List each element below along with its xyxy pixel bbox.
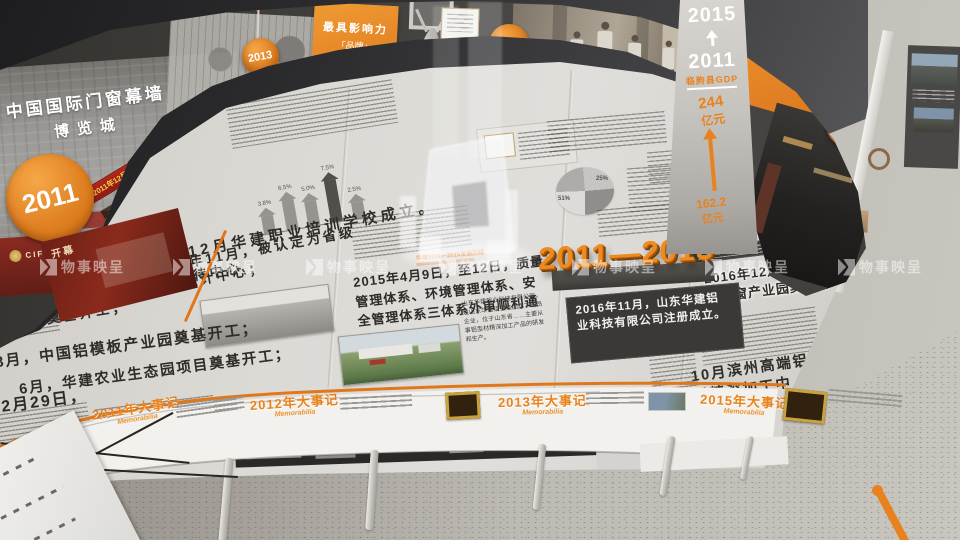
right-panel-text: 2011年12月 临朐华建股份有限公司成立 xyxy=(745,14,859,96)
text-lines xyxy=(226,79,399,149)
collage-photo xyxy=(315,427,356,458)
collage-photo xyxy=(448,424,483,453)
text-lines xyxy=(745,42,811,80)
text-lines xyxy=(547,111,668,155)
gold-plaque xyxy=(782,388,827,424)
exhibition-hall-render: 3.8% 6.5% 5.0% 7.5% 2.5% 12月华建职业培训学校成立。 … xyxy=(0,0,960,540)
railing-photo-chip xyxy=(648,392,686,411)
red-sign xyxy=(369,359,385,366)
orange-dot xyxy=(259,68,267,76)
building-shape xyxy=(358,344,413,360)
ring-object xyxy=(868,148,890,170)
opening-poster-text: 开幕 xyxy=(49,240,76,260)
up-arrow-icon xyxy=(666,28,759,49)
memorabilia-2013: 2013年大事记 Memorabilia xyxy=(498,390,588,417)
text-lines xyxy=(912,89,954,102)
collage-photo xyxy=(245,431,302,459)
gold-plaque xyxy=(445,391,480,420)
collage-photo xyxy=(554,420,585,449)
flag-icon xyxy=(846,58,860,68)
gdp-pillar: 2015 2011 临朐县GDP 244 亿元 162.2 亿元 xyxy=(666,0,758,254)
company-paragraph: 山东华建铝业科技有限公司，是山东华建铝业集团旗下成员企业，位于山东省……主要从事… xyxy=(461,292,550,387)
lit-window xyxy=(813,168,853,184)
poster-photo xyxy=(95,232,173,288)
background-photo xyxy=(911,53,958,85)
flag-icon xyxy=(245,2,258,12)
right-panel-date: 2011年12月 xyxy=(758,14,859,70)
gdp-2011-value-group: 162.2 亿元 xyxy=(665,191,760,230)
background-display-board xyxy=(904,45,960,169)
collage-photo xyxy=(369,429,436,453)
year-marker-2013-label: 2013 xyxy=(247,48,273,64)
right-end-top-panel xyxy=(737,0,878,52)
year-marker-2011-label: 2011 xyxy=(19,176,81,220)
collage-photo xyxy=(493,426,546,448)
year-marker-2013: 2013 xyxy=(242,38,279,75)
certificate-caption xyxy=(441,41,475,47)
caption-lines xyxy=(0,485,64,519)
year-marker-2014-label: 2014 xyxy=(495,36,523,53)
pillar-year-top: 2015 xyxy=(665,2,758,30)
orange-floor-path-cap xyxy=(872,485,883,496)
certificate xyxy=(484,132,516,159)
pie-label: 25% xyxy=(596,176,608,182)
pie-label: 51% xyxy=(558,196,570,202)
background-photo xyxy=(913,107,954,132)
lit-window xyxy=(782,136,812,150)
memorabilia-2015: 2015年大事记 Memorabilia xyxy=(699,389,789,419)
certificate xyxy=(440,7,479,40)
caption-lines xyxy=(586,391,644,405)
campus-photo xyxy=(338,324,465,386)
text-lines xyxy=(447,14,474,33)
year-marker-2011: 2011 xyxy=(6,154,94,242)
memorabilia-2013-title: 2013年大事记 xyxy=(498,390,587,411)
flag-pole xyxy=(855,66,863,102)
year-marker-2014: 2014 xyxy=(489,24,529,64)
caption-lines xyxy=(0,457,36,489)
gdp-growth-arrow-icon xyxy=(663,124,760,195)
right-panel-event: 临朐华建股份有限公司成立 xyxy=(751,25,853,83)
cifec-emblem-icon xyxy=(9,249,22,262)
caption-lines xyxy=(21,517,76,540)
building-shape xyxy=(418,343,441,353)
